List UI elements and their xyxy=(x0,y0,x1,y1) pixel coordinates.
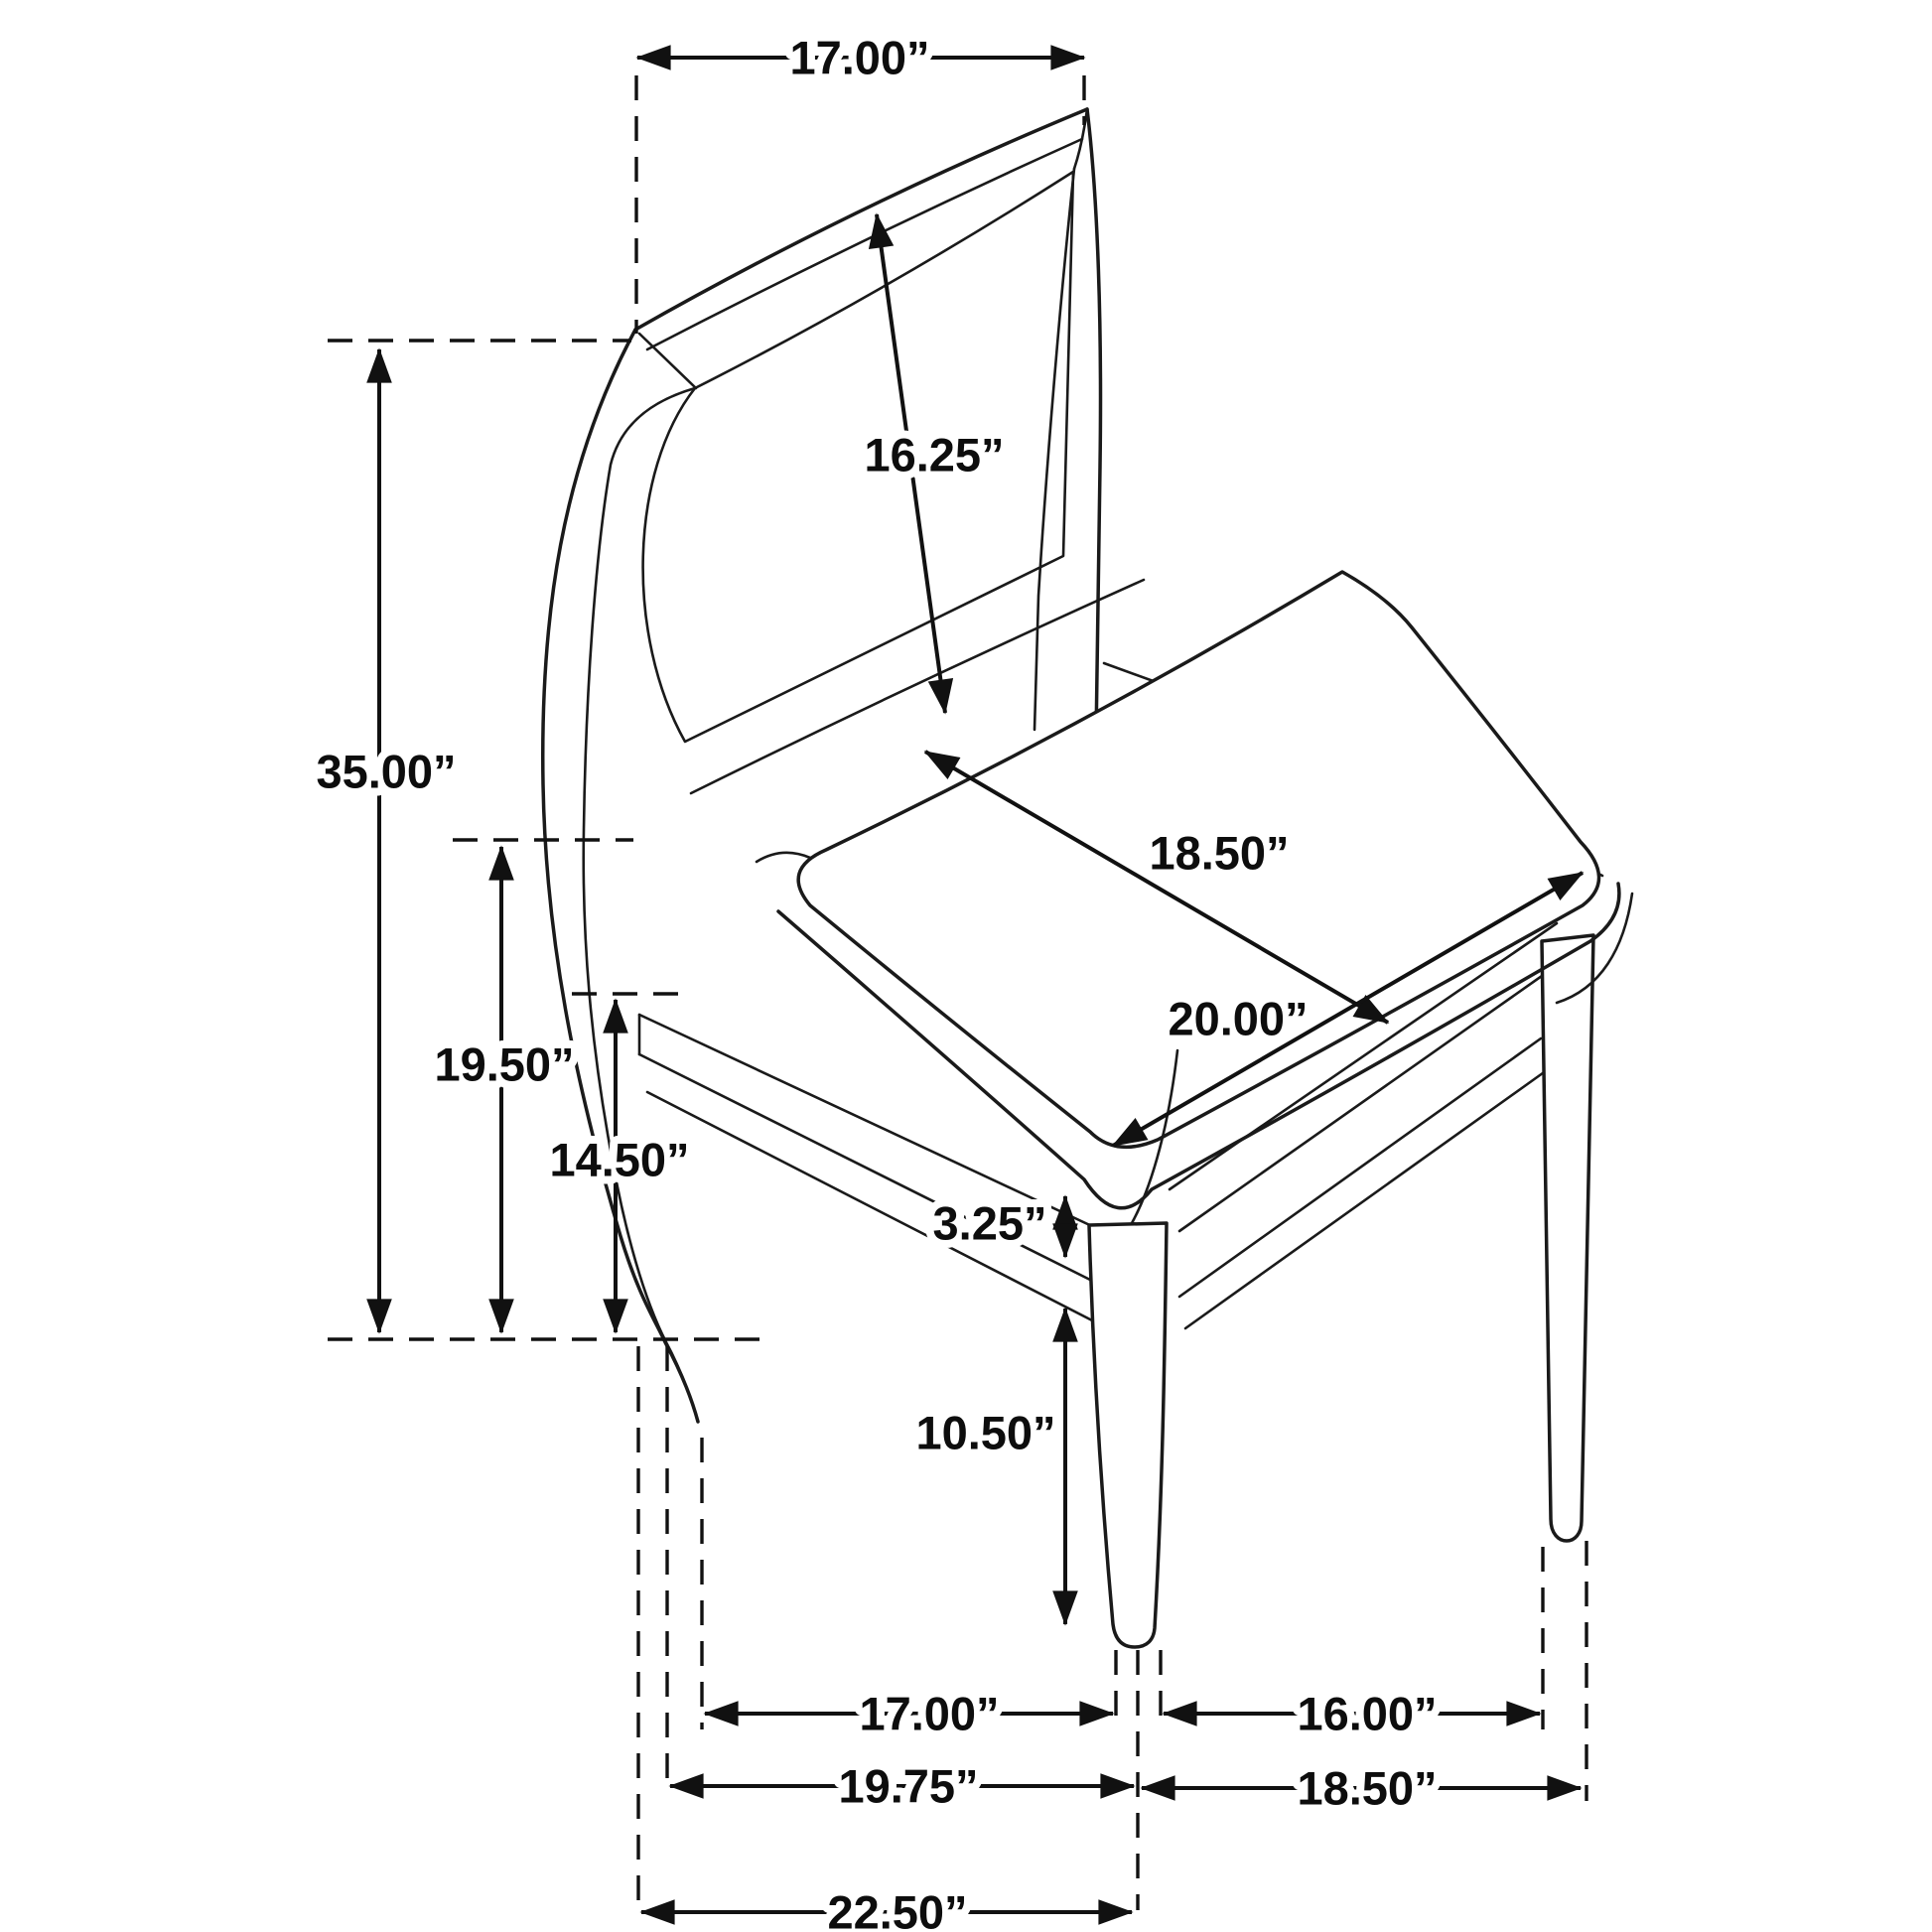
dimension-label-base-depth-right: 18.50” xyxy=(1297,1762,1437,1815)
rear-left-leg-inner xyxy=(584,388,698,1422)
cane-panel xyxy=(643,172,1073,742)
dimension-label-back-width-top: 17.00” xyxy=(789,32,929,84)
chair-dimension-diagram: 17.00”35.00”19.50”14.50”16.25”18.50”20.0… xyxy=(0,0,1932,1932)
dimension-label-seat-depth: 18.50” xyxy=(1149,827,1289,880)
dimension-label-base-span-front: 17.00” xyxy=(859,1688,999,1740)
dimension-label-leg-height: 10.50” xyxy=(915,1407,1055,1459)
dimension-label-seat-height: 19.50” xyxy=(434,1038,574,1091)
dimension-label-base-depth-left: 19.75” xyxy=(838,1760,978,1813)
diagram-svg: 17.00”35.00”19.50”14.50”16.25”18.50”20.0… xyxy=(0,0,1932,1932)
dimension-label-overall-height: 35.00” xyxy=(316,746,456,798)
dimension-label-base-span-right: 16.00” xyxy=(1297,1688,1437,1740)
dimension-label-apron-height: 14.50” xyxy=(549,1134,689,1186)
dimension-label-overall-depth: 22.50” xyxy=(827,1886,967,1932)
front-leg xyxy=(1089,1223,1167,1647)
dimension-label-stretcher-gap: 3.25” xyxy=(933,1197,1047,1250)
dimension-label-back-panel-height: 16.25” xyxy=(864,429,1004,482)
right-leg xyxy=(1542,935,1593,1541)
dimension-label-seat-width: 20.00” xyxy=(1168,993,1308,1045)
chair-line-art xyxy=(543,109,1632,1647)
rear-left-leg xyxy=(543,330,698,1422)
